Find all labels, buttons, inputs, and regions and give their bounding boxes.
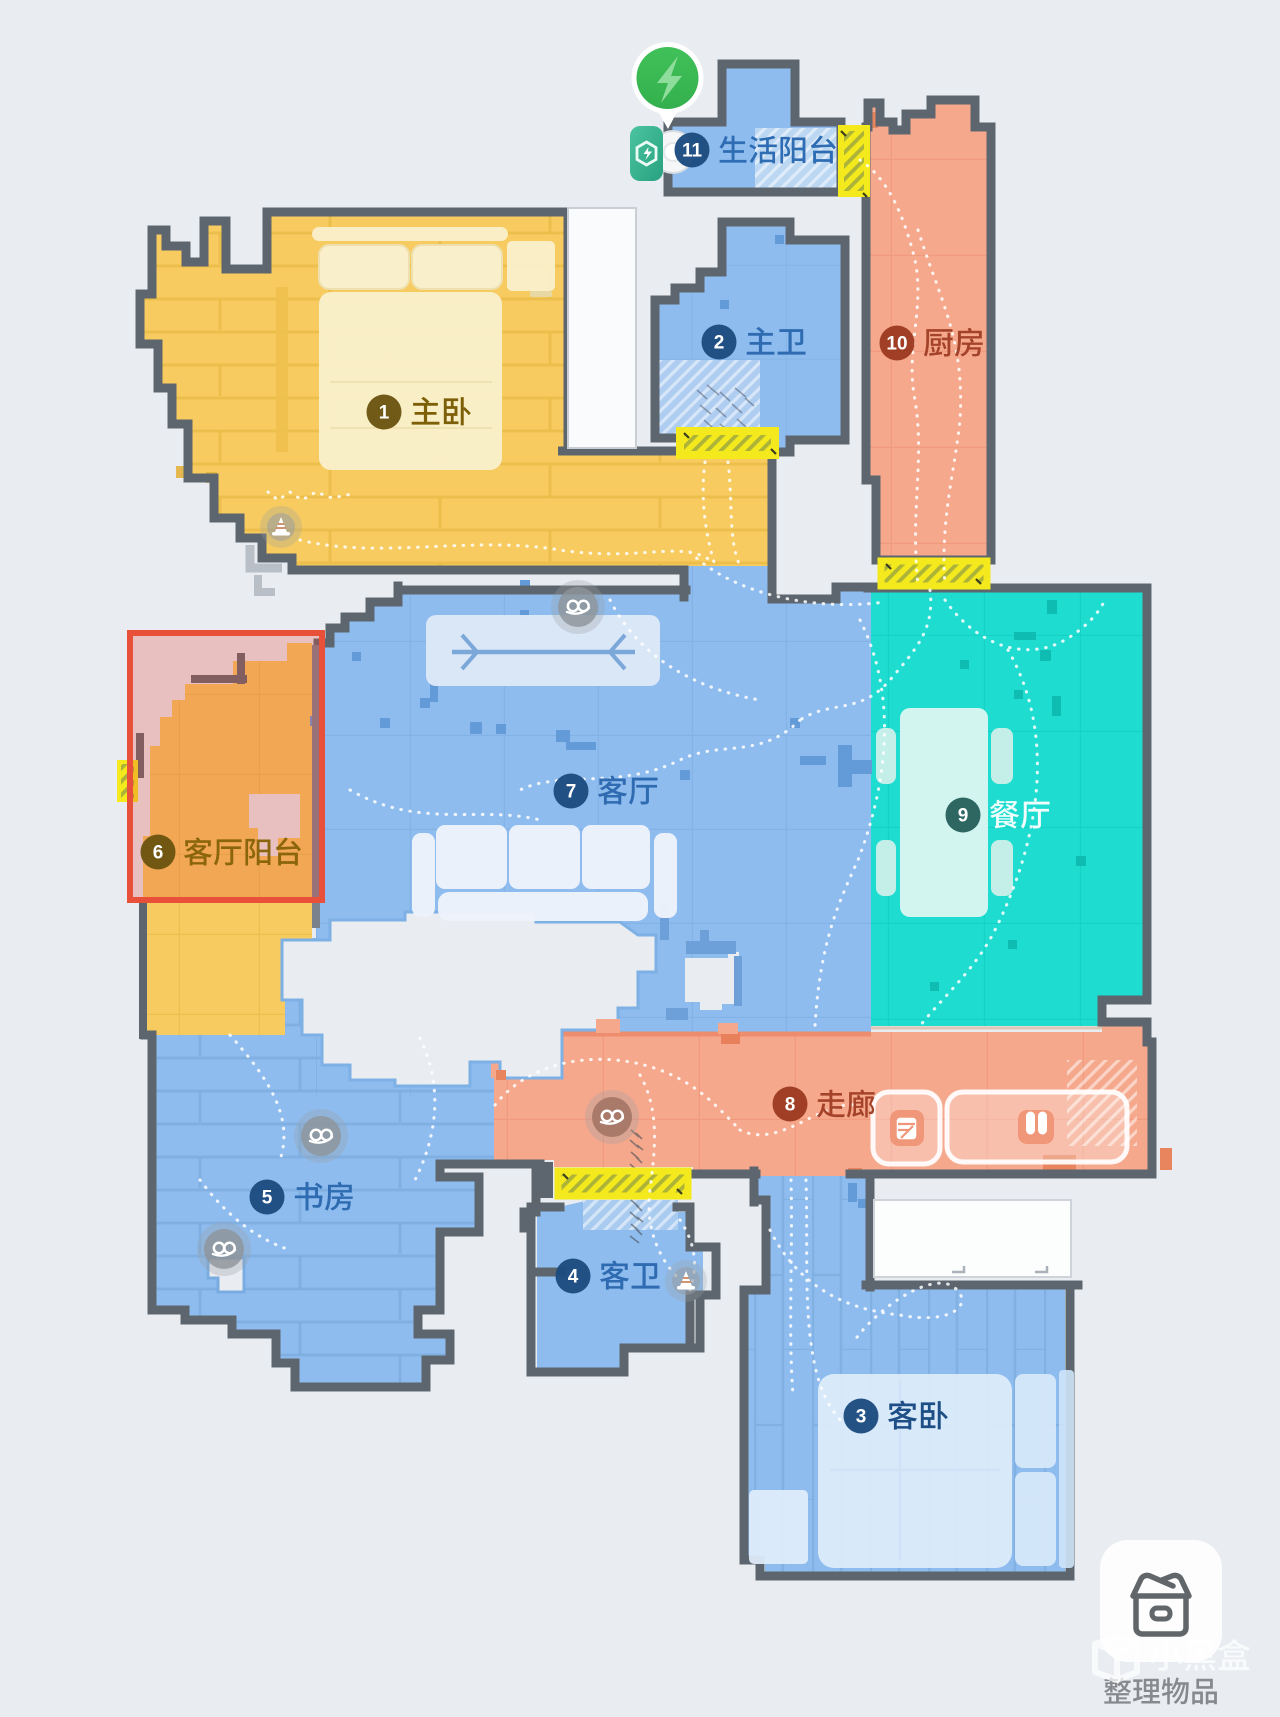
svg-text:3: 3 — [856, 1407, 867, 1428]
svg-text:1: 1 — [379, 403, 390, 424]
svg-text:8: 8 — [785, 1095, 796, 1116]
svg-text:11: 11 — [682, 141, 703, 162]
svg-text:9: 9 — [958, 806, 969, 827]
svg-text:6: 6 — [153, 843, 164, 864]
svg-text:4: 4 — [568, 1267, 579, 1288]
svg-text:10: 10 — [886, 334, 907, 355]
svg-text:7: 7 — [566, 782, 577, 803]
svg-text:5: 5 — [262, 1188, 273, 1209]
svg-text:2: 2 — [714, 333, 725, 354]
